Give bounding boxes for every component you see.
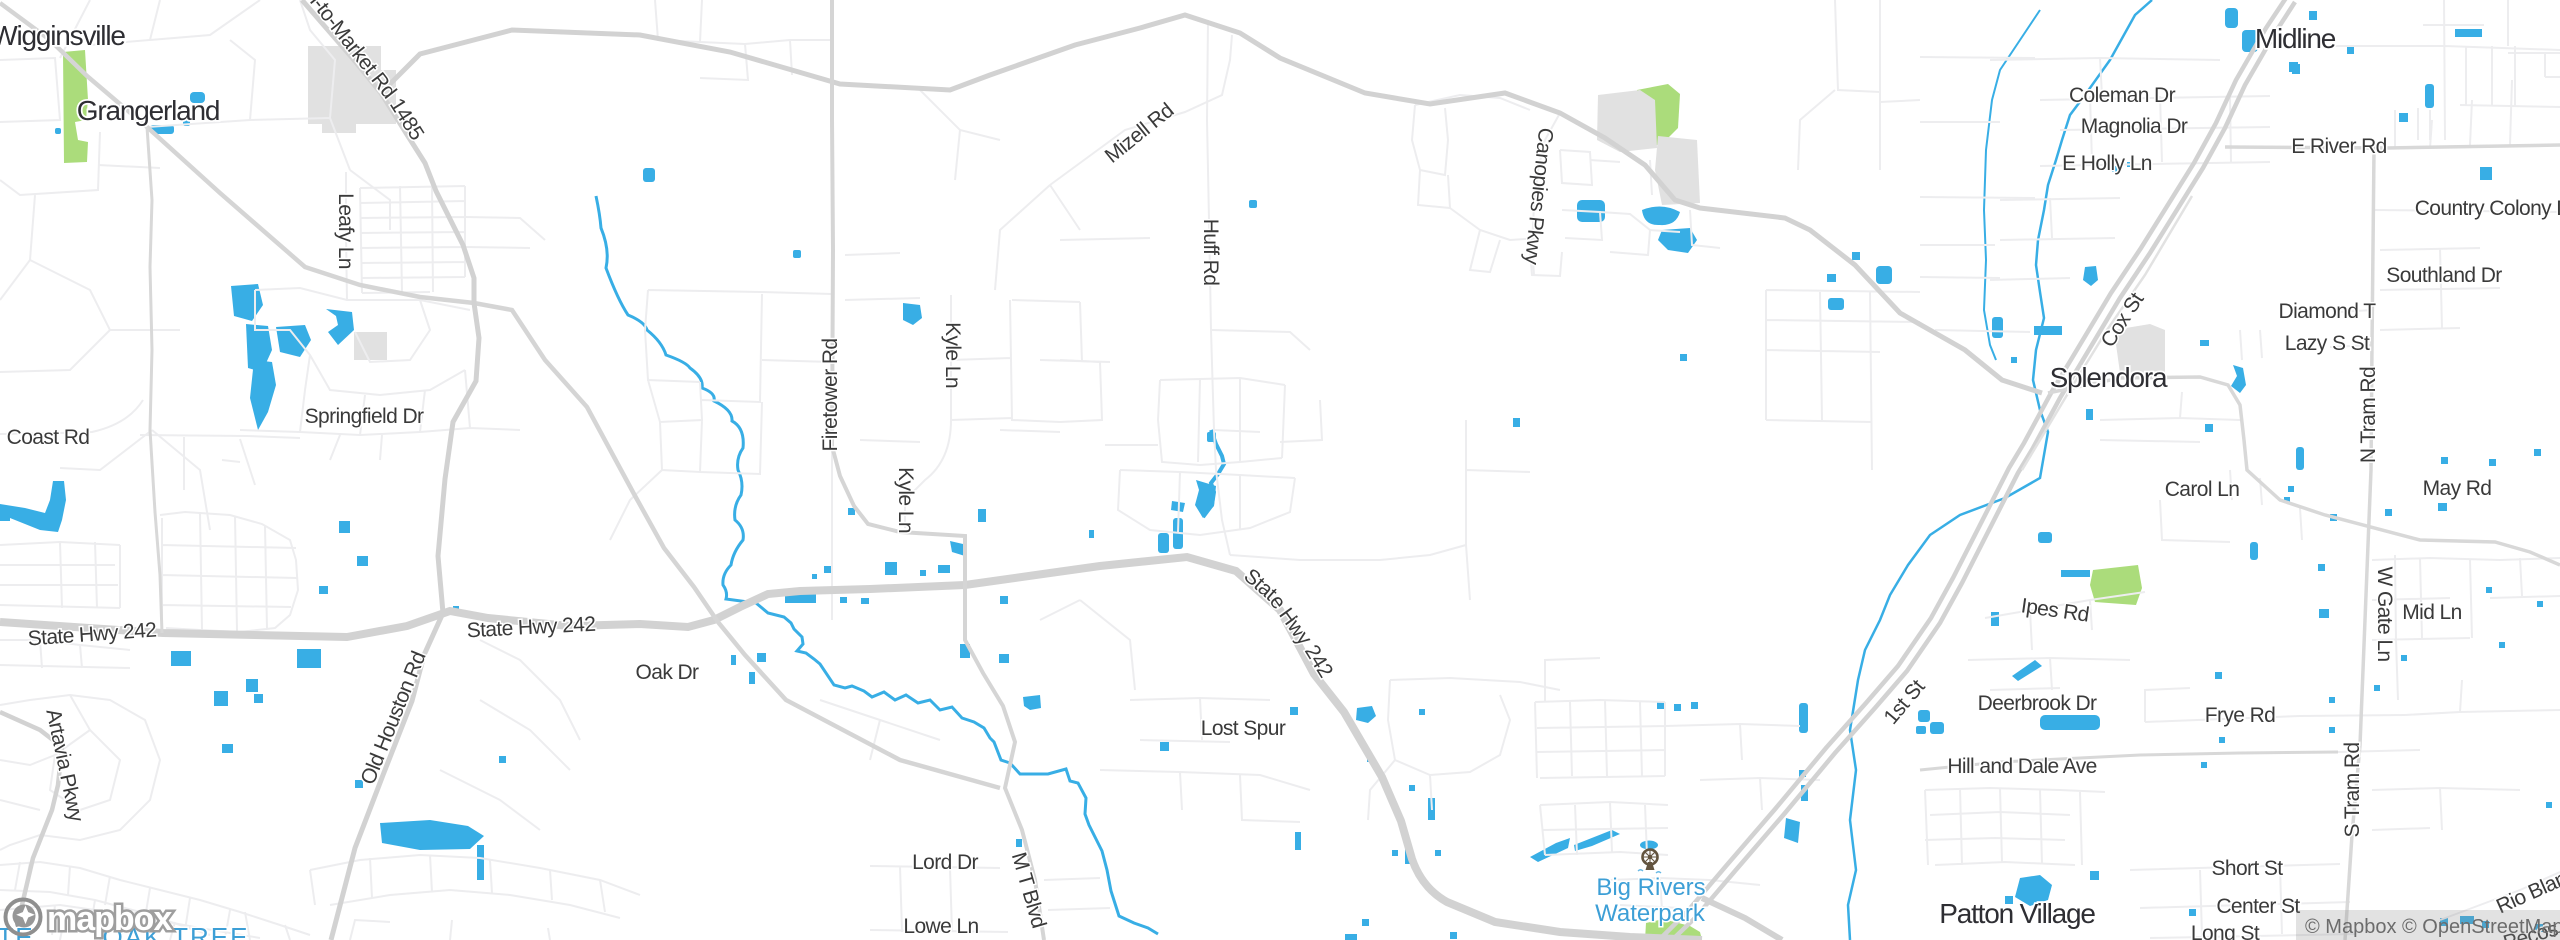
svg-text:Leafy Ln: Leafy Ln: [334, 193, 357, 269]
svg-text:Lowe Ln: Lowe Ln: [903, 915, 978, 938]
svg-text:Lord Dr: Lord Dr: [912, 851, 978, 874]
svg-text:Huff Rd: Huff Rd: [1199, 219, 1222, 286]
svg-text:Kyle Ln: Kyle Ln: [941, 322, 964, 388]
svg-text:mapbox: mapbox: [47, 900, 172, 938]
svg-text:Magnolia Dr: Magnolia Dr: [2081, 115, 2188, 138]
svg-text:Country Colony Dr: Country Colony Dr: [2415, 197, 2560, 220]
svg-text:N Tram Rd: N Tram Rd: [2357, 367, 2380, 463]
svg-text:Frye Rd: Frye Rd: [2205, 704, 2275, 727]
svg-text:Grangerland: Grangerland: [77, 95, 219, 126]
svg-text:© Mapbox © OpenStreetMap: © Mapbox © OpenStreetMap: [2305, 916, 2560, 938]
svg-text:Short St: Short St: [2211, 857, 2283, 880]
svg-text:Firetower Rd: Firetower Rd: [819, 339, 842, 452]
svg-text:Long St: Long St: [2191, 922, 2260, 940]
svg-text:Wigginsville: Wigginsville: [0, 20, 125, 51]
svg-text:Big Rivers: Big Rivers: [1596, 874, 1705, 901]
svg-text:Diamond T: Diamond T: [2279, 300, 2377, 323]
svg-text:Midline: Midline: [2255, 23, 2336, 54]
svg-text:Center St: Center St: [2216, 895, 2300, 918]
svg-text:Patton Village: Patton Village: [1939, 898, 2095, 929]
svg-text:Springfield Dr: Springfield Dr: [305, 405, 424, 428]
svg-text:S Tram Rd: S Tram Rd: [2341, 743, 2364, 838]
svg-text:Kyle Ln: Kyle Ln: [894, 467, 917, 533]
svg-text:Deerbrook Dr: Deerbrook Dr: [1978, 692, 2097, 715]
svg-text:May Rd: May Rd: [2423, 477, 2492, 500]
svg-text:Waterpark: Waterpark: [1595, 900, 1706, 927]
svg-text:E River Rd: E River Rd: [2291, 135, 2387, 158]
svg-text:Hill and Dale Ave: Hill and Dale Ave: [1947, 755, 2096, 778]
svg-text:Lazy S St: Lazy S St: [2285, 332, 2370, 355]
svg-text:Mid Ln: Mid Ln: [2402, 601, 2461, 624]
svg-text:Lost Spur: Lost Spur: [1201, 717, 1286, 740]
svg-text:W Gate Ln: W Gate Ln: [2373, 567, 2396, 662]
svg-text:Southland Dr: Southland Dr: [2386, 264, 2502, 287]
svg-text:Coleman Dr: Coleman Dr: [2069, 84, 2176, 107]
svg-text:Oak Dr: Oak Dr: [636, 661, 700, 684]
svg-text:E Holly Ln: E Holly Ln: [2062, 152, 2152, 175]
svg-text:Splendora: Splendora: [2050, 362, 2168, 393]
svg-text:Carol Ln: Carol Ln: [2165, 478, 2240, 501]
svg-text:Coast Rd: Coast Rd: [7, 426, 90, 449]
